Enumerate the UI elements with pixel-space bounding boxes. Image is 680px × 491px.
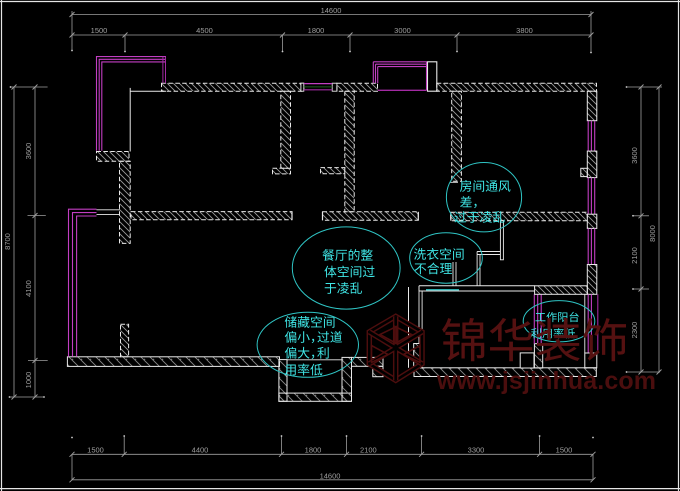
svg-text:8700: 8700	[3, 233, 12, 250]
svg-text:2100: 2100	[630, 247, 639, 264]
svg-text:1500: 1500	[556, 446, 573, 455]
svg-text:3600: 3600	[630, 147, 639, 164]
svg-text:8000: 8000	[648, 225, 657, 242]
svg-text:1500: 1500	[91, 26, 108, 35]
svg-text:3000: 3000	[394, 26, 411, 35]
svg-text:4500: 4500	[196, 26, 213, 35]
svg-text:3800: 3800	[516, 26, 533, 35]
svg-text:3600: 3600	[24, 143, 33, 160]
svg-text:4100: 4100	[24, 280, 33, 297]
svg-text:3300: 3300	[468, 446, 485, 455]
svg-text:1800: 1800	[308, 26, 325, 35]
svg-text:4400: 4400	[192, 446, 209, 455]
svg-text:14600: 14600	[321, 6, 342, 15]
svg-text:1800: 1800	[305, 446, 322, 455]
svg-text:14600: 14600	[320, 471, 341, 480]
svg-text:www.jsjinhua.com: www.jsjinhua.com	[436, 367, 656, 395]
svg-text:2300: 2300	[630, 322, 639, 339]
svg-text:1000: 1000	[24, 372, 33, 389]
svg-text:1500: 1500	[87, 446, 104, 455]
svg-text:2100: 2100	[360, 446, 377, 455]
